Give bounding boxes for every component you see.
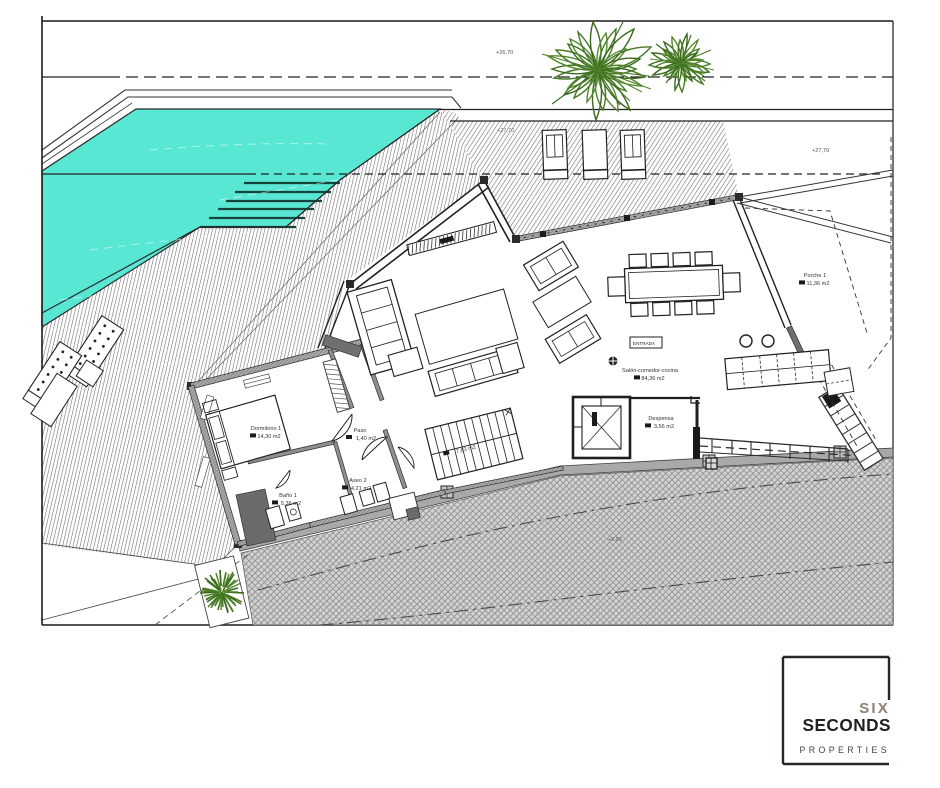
svg-text:PROPERTIES: PROPERTIES <box>799 745 890 755</box>
svg-text:Despensa: Despensa <box>648 416 674 422</box>
svg-text:ENTRADA: ENTRADA <box>633 341 656 346</box>
svg-text:Porche 1: Porche 1 <box>804 273 826 279</box>
svg-text:Baño 1: Baño 1 <box>279 493 297 499</box>
svg-text:SECONDS: SECONDS <box>803 715 892 735</box>
svg-text:5,36 m2: 5,36 m2 <box>281 501 301 507</box>
svg-text:1,40 m2: 1,40 m2 <box>356 436 376 442</box>
svg-text:11,36 m2: 11,36 m2 <box>807 281 830 287</box>
svg-text:Paso: Paso <box>354 428 367 434</box>
svg-text:+26,70: +26,70 <box>496 50 513 56</box>
svg-text:3,56 m2: 3,56 m2 <box>654 424 674 430</box>
svg-text:4,21 m2: 4,21 m2 <box>351 486 371 492</box>
svg-text:Salón-comedor-cocina: Salón-comedor-cocina <box>622 368 679 374</box>
svg-text:84,36 m2: 84,36 m2 <box>641 376 664 382</box>
svg-text:14,30 m2: 14,30 m2 <box>257 434 280 440</box>
svg-text:Dormitorio 1: Dormitorio 1 <box>251 426 281 432</box>
svg-text:+27,70: +27,70 <box>497 128 514 134</box>
svg-text:+8,80: +8,80 <box>608 537 622 543</box>
svg-text:Aseo 2: Aseo 2 <box>349 478 366 484</box>
svg-text:+27,70: +27,70 <box>812 148 829 154</box>
